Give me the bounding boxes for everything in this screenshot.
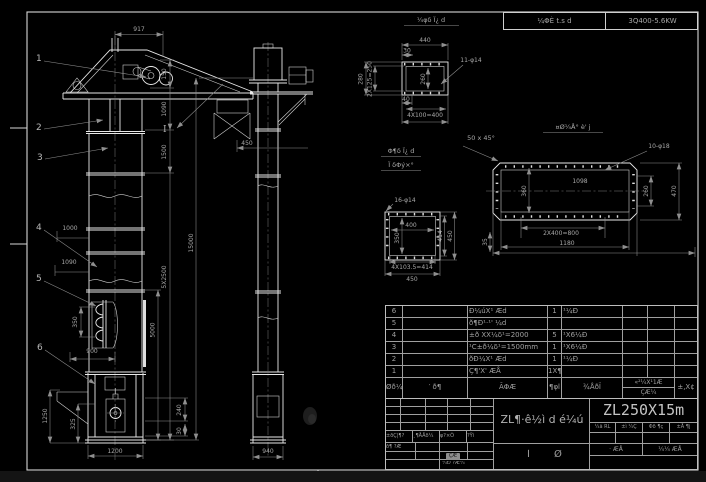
dim-360: 360: [521, 185, 528, 197]
part-name: Ç¶'X' ÆÅ: [468, 366, 548, 378]
part-code: [403, 318, 468, 330]
dim-450c-outer: 450: [406, 276, 418, 283]
part-total-weight: [648, 342, 675, 354]
motor-spec-cell: 3Q400-5.6KW: [605, 13, 699, 29]
dim-450-side: 450: [241, 140, 253, 147]
dim-470: 470: [671, 185, 678, 197]
dim-260b: 260: [643, 185, 650, 197]
dim-5x2500: 5X2500: [161, 265, 168, 288]
part-code: [403, 342, 468, 354]
chamfer-note-text: 50 x 45°: [467, 134, 495, 142]
sig-header-3: φ?×Ò: [440, 431, 467, 443]
part-material: [562, 318, 623, 330]
detail-b-title: ¤Ø¼Å° è' j: [556, 122, 591, 131]
dim-30a: 30: [403, 48, 411, 55]
drawing-name-cell: ZL¶·ê½ì d é¼ú: [494, 399, 590, 444]
sheet-header-strip: ¼ΦÈ t.s d 3Q400-5.6KW: [503, 12, 698, 30]
label-1098: 1098: [572, 178, 587, 185]
part-code: [403, 306, 468, 318]
part-qty: 5: [548, 330, 562, 342]
part-total-weight: [648, 318, 675, 330]
col-no: Øð¼: [386, 378, 403, 398]
part-no: 4: [386, 330, 403, 342]
parts-list-table: 6 Ð¼úX¹ Æd 1 ¹¼Ð 5 ð¶Ð¹·¹' ¼d 4 ±ð XΧ¼δ¹…: [385, 305, 698, 399]
balloon-4: 4: [36, 223, 42, 233]
right-cell-4: ±Å ¶j: [670, 423, 697, 433]
balloon-callouts: 1 2 3 4 5 6: [36, 54, 146, 384]
dim-917: 917: [133, 26, 145, 33]
part-total-weight: [648, 306, 675, 318]
sheet-mark-2: Ø: [554, 449, 562, 460]
part-material: [562, 366, 623, 378]
part-no: 5: [386, 318, 403, 330]
dim-440: 440: [419, 37, 431, 44]
part-no: 3: [386, 342, 403, 354]
dim-40: 40: [402, 96, 410, 103]
detail-square-flange: Φ¶δ Ï¿ d Ï δΦý×° 16-φ14 400 350 414 450 …: [381, 146, 457, 283]
balloon-1: 1: [36, 54, 42, 64]
drawing-name: ZL¶·ê½ì d é¼ú: [494, 413, 590, 426]
dim-414: 414: [437, 230, 444, 242]
dim-240: 240: [176, 404, 183, 416]
table-row: 4 ±ð XΧ¼δ¹=2000 5 ¹Χ6¼Ð: [386, 330, 697, 342]
dim-30: 30: [176, 427, 183, 435]
col-code: ′ ð¶: [403, 378, 468, 398]
part-qty: [548, 318, 562, 330]
sig-bottom-label: ¼Ð ?Æ¼: [442, 461, 492, 469]
part-unit-weight: [623, 342, 648, 354]
dim-15000: 15000: [188, 233, 195, 252]
sheet-count-cell: Ì Ø: [494, 444, 590, 469]
part-code: [403, 366, 468, 378]
sig-header-4: ?Ŷì: [467, 431, 494, 443]
side-view: 450 940: [237, 42, 317, 460]
part-code: [403, 354, 468, 366]
balloon-3: 3: [37, 153, 43, 163]
sig-header-2: ¸¶ÅÅð¼: [413, 431, 440, 443]
dim-450c: 450: [447, 230, 454, 242]
part-name: ðÐ¼X¹ Æd: [468, 354, 548, 366]
dim-1000: 1000: [62, 225, 77, 232]
dim-2x125: 2X125=250: [367, 61, 374, 97]
part-qty: 1: [548, 354, 562, 366]
dim-1200: 1200: [107, 448, 122, 455]
holes-16-phi14: 16-φ14: [394, 197, 416, 204]
dim-400: 400: [405, 222, 417, 229]
dim-900: 900: [86, 348, 98, 355]
table-row: 6 Ð¼úX¹ Æd 1 ¹¼Ð: [386, 306, 697, 318]
part-no: 1: [386, 366, 403, 378]
part-qty: 1: [548, 342, 562, 354]
part-qty: 1X¶δÆ·: [548, 366, 562, 378]
part-remark: [675, 354, 697, 366]
parts-table-header-row: Øð¼ ′ ð¶ ÃΦÆ ¶φl ¾ÅðÏ «²¼X¹1Æ ÇÆ¼ ±,X¢: [386, 378, 697, 398]
part-remark: [675, 330, 697, 342]
balloon-5: 5: [36, 274, 42, 284]
dim-325: 325: [70, 418, 77, 430]
scale-label-left: · ÆÅ: [590, 444, 643, 456]
signature-grid: ±ðÇ|¶? ¸¶ÅÅð¼ φ?×Ò ?Ŷì ð¶ ?Æ ÇÆ ¼Ð ?Æ¼: [386, 399, 494, 469]
detail-c-title-2: Ï δΦý×°: [388, 160, 414, 169]
table-row: 5 ð¶Ð¹·¹' ¼d: [386, 318, 697, 330]
model-panel: ZL250X15m ¼ã RL ±ì ¼Ç Φð ¶ç ±Å ¶j · ÆÅ ¼…: [590, 399, 697, 469]
part-total-weight: [648, 366, 675, 378]
dim-4x100: 4X100=400: [407, 112, 443, 119]
balloon-6: 6: [37, 343, 43, 353]
holes-10-phi18: 10-φ18: [648, 143, 670, 150]
part-remark: [675, 318, 697, 330]
section-mark: I: [163, 125, 167, 135]
right-cell-3: Φð ¶ç: [643, 423, 670, 433]
detail-side-flange: ¤Ø¼Å° è' j 10-φ18 1098 360 260 470 2X400…: [482, 122, 695, 257]
col-weight-top: «²¼X¹1Æ: [623, 378, 674, 388]
dim-1090: 1090: [161, 101, 168, 116]
dim-1250: 1250: [42, 408, 49, 423]
col-name: ÃΦÆ: [468, 378, 548, 398]
part-unit-weight: [623, 330, 648, 342]
part-material: ¹Χ6¼Ð: [562, 330, 623, 342]
part-code: [403, 330, 468, 342]
part-name: ±ð XΧ¼δ¹=2000: [468, 330, 548, 342]
holes-11-phi14: 11-φ14: [460, 57, 482, 64]
part-total-weight: [648, 330, 675, 342]
part-unit-weight: [623, 354, 648, 366]
process-note-cell: ¼ΦÈ t.s d: [504, 13, 605, 29]
part-material: ¹¼Ð: [562, 306, 623, 318]
dim-5000: 5000: [150, 322, 157, 337]
part-total-weight: [648, 354, 675, 366]
dim-350c: 350: [394, 232, 401, 244]
part-material: ¹¼Ð: [562, 354, 623, 366]
gray-stamp: ÇÆ: [446, 453, 460, 460]
dim-150: 150: [161, 68, 168, 80]
col-material: ¾ÅðÏ: [562, 378, 623, 398]
col-weight-bottom: ÇÆ¼: [623, 388, 674, 397]
sig-header-1: ±ðÇ|¶?: [386, 431, 413, 443]
col-weight: «²¼X¹1Æ ÇÆ¼: [623, 378, 675, 398]
part-name: ð¶Ð¹·¹' ¼d: [468, 318, 548, 330]
front-view: [57, 36, 253, 460]
part-remark: [675, 366, 697, 378]
part-unit-weight: [623, 366, 648, 378]
front-view-dimensions: 917 150 1090 1500 5X2500 15000 1000 1090…: [42, 26, 253, 459]
dim-280: 280: [358, 73, 365, 85]
dim-35: 35: [482, 238, 489, 246]
table-row: 1 Ç¶'X' ÆÅ 1X¶δÆ·: [386, 366, 697, 378]
model-number: ZL250X15m: [590, 399, 697, 423]
table-row: 3 ¹C±ð¼δ¹=1500mm 1 ¹Χ6¼Ð: [386, 342, 697, 354]
signature-cells: [386, 399, 494, 431]
right-cell-1: ¼ã RL: [590, 423, 616, 433]
part-name: Ð¼úX¹ Æd: [468, 306, 548, 318]
dim-1090b: 1090: [61, 259, 76, 266]
col-remark: ±,X¢: [675, 378, 697, 398]
part-qty: 1: [548, 306, 562, 318]
right-cell-2: ±ì ¼Ç: [616, 423, 643, 433]
part-material: ¹Χ6¼Ð: [562, 342, 623, 354]
part-no: 6: [386, 306, 403, 318]
balloon-2: 2: [36, 123, 42, 133]
cad-drawing-sheet: 917 150 1090 1500 5X2500 15000 1000 1090…: [0, 0, 706, 482]
detail-top-flange: ¼φδ Ï¿ d 440 30 11-φ14 280 2X125=250 260…: [358, 15, 482, 124]
dim-1180: 1180: [559, 240, 574, 247]
dim-4x103: 4X103.5=414: [391, 264, 433, 271]
col-qty: ¶φl: [548, 378, 562, 398]
sheet-mark-1: Ì: [527, 449, 530, 460]
title-block: ±ðÇ|¶? ¸¶ÅÅð¼ φ?×Ò ?Ŷì ð¶ ?Æ ÇÆ ¼Ð ?Æ¼ Z…: [385, 398, 698, 470]
sig-label: ð¶ ?Æ: [386, 443, 416, 452]
dim-350: 350: [72, 316, 79, 328]
part-remark: [675, 342, 697, 354]
detail-a-title: ¼φδ Ï¿ d: [417, 15, 445, 24]
dim-940: 940: [262, 448, 274, 455]
table-row: 2 ðÐ¼X¹ Æd 1 ¹¼Ð: [386, 354, 697, 366]
part-no: 2: [386, 354, 403, 366]
chamfer-note: 50 x 45°: [463, 134, 498, 161]
part-unit-weight: [623, 318, 648, 330]
part-unit-weight: [623, 306, 648, 318]
dim-1500: 1500: [161, 144, 168, 159]
scale-label-right: ¼¼ ÆÅ: [643, 444, 697, 456]
detail-c-title-1: Φ¶δ Ï¿ d: [388, 146, 415, 155]
dim-260a: 260: [420, 73, 427, 85]
part-remark: [675, 306, 697, 318]
dim-2x400: 2X400=800: [543, 230, 579, 237]
part-name: ¹C±ð¼δ¹=1500mm: [468, 342, 548, 354]
